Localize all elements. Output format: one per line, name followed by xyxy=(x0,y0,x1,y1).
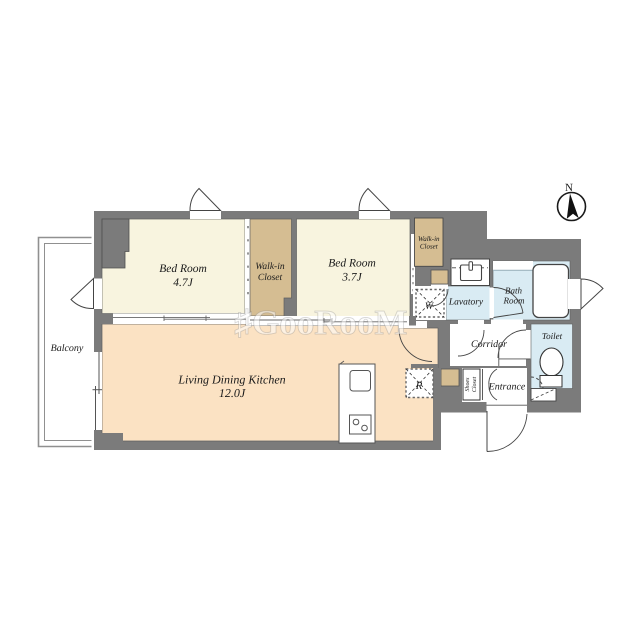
svg-text:♯GooRooM: ♯GooRooM xyxy=(234,303,407,342)
svg-text:Lavatory: Lavatory xyxy=(448,298,484,308)
svg-text:Entrance: Entrance xyxy=(488,382,526,393)
svg-text:Shoes: Shoes xyxy=(464,377,471,392)
svg-text:Closet: Closet xyxy=(420,243,439,251)
svg-text:Bed Room: Bed Room xyxy=(159,263,207,275)
svg-text:Living Dining Kitchen: Living Dining Kitchen xyxy=(177,373,285,387)
svg-text:Walk-in: Walk-in xyxy=(255,262,284,272)
svg-text:4.7J: 4.7J xyxy=(173,277,193,289)
svg-text:Closet: Closet xyxy=(258,273,283,283)
svg-text:3.7J: 3.7J xyxy=(341,272,362,284)
svg-text:Balcony: Balcony xyxy=(51,343,84,354)
svg-text:Toilet: Toilet xyxy=(542,331,563,341)
svg-text:Bed Room: Bed Room xyxy=(328,258,376,270)
svg-text:12.0J: 12.0J xyxy=(219,386,246,400)
svg-text:R: R xyxy=(415,380,423,392)
svg-text:Room: Room xyxy=(503,296,525,306)
svg-text:Closet: Closet xyxy=(471,377,478,393)
svg-text:Bath: Bath xyxy=(505,286,522,296)
